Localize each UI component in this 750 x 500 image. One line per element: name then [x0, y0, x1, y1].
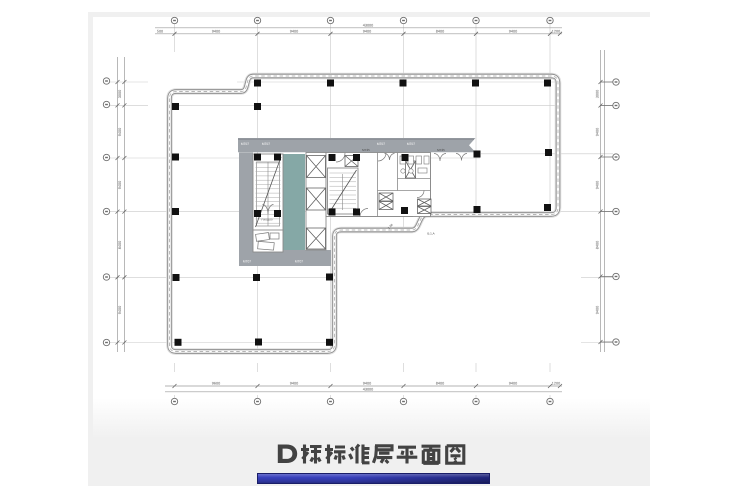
svg-text:9400: 9400 [290, 30, 298, 34]
svg-text:MT07: MT07 [377, 142, 385, 146]
svg-text:9600: 9600 [212, 382, 220, 386]
svg-text:1200: 1200 [552, 30, 560, 34]
svg-text:B.1.A: B.1.A [427, 232, 434, 236]
svg-text:3000: 3000 [118, 90, 122, 98]
svg-text:1200: 1200 [552, 382, 560, 386]
svg-text:MT25: MT25 [437, 148, 445, 152]
svg-text:9400: 9400 [596, 128, 600, 136]
svg-text:FWJ1100: FWJ1100 [262, 219, 273, 222]
svg-text:8400: 8400 [436, 382, 444, 386]
svg-text:43000: 43000 [363, 387, 374, 391]
svg-text:9400: 9400 [596, 181, 600, 189]
svg-text:9400: 9400 [596, 306, 600, 314]
svg-text:9400: 9400 [212, 30, 220, 34]
svg-text:3000: 3000 [596, 90, 600, 98]
svg-text:MT07: MT07 [241, 142, 249, 146]
svg-text:MT25: MT25 [362, 148, 370, 152]
svg-text:8400: 8400 [436, 30, 444, 34]
svg-text:500: 500 [157, 30, 163, 34]
svg-text:MT07: MT07 [262, 142, 270, 146]
svg-text:43000: 43000 [363, 24, 374, 28]
svg-text:MT07: MT07 [295, 259, 303, 263]
svg-text:8400: 8400 [118, 241, 122, 249]
svg-text:MT07: MT07 [243, 259, 251, 263]
svg-text:9400: 9400 [363, 30, 371, 34]
svg-text:9400: 9400 [509, 382, 517, 386]
svg-text:MT07: MT07 [407, 142, 415, 146]
svg-text:9400: 9400 [363, 382, 371, 386]
svg-text:9400: 9400 [118, 181, 122, 189]
svg-text:8400: 8400 [596, 241, 600, 249]
svg-text:9400: 9400 [118, 306, 122, 314]
svg-text:9400: 9400 [509, 30, 517, 34]
svg-text:9400: 9400 [118, 128, 122, 136]
svg-text:9400: 9400 [290, 382, 298, 386]
